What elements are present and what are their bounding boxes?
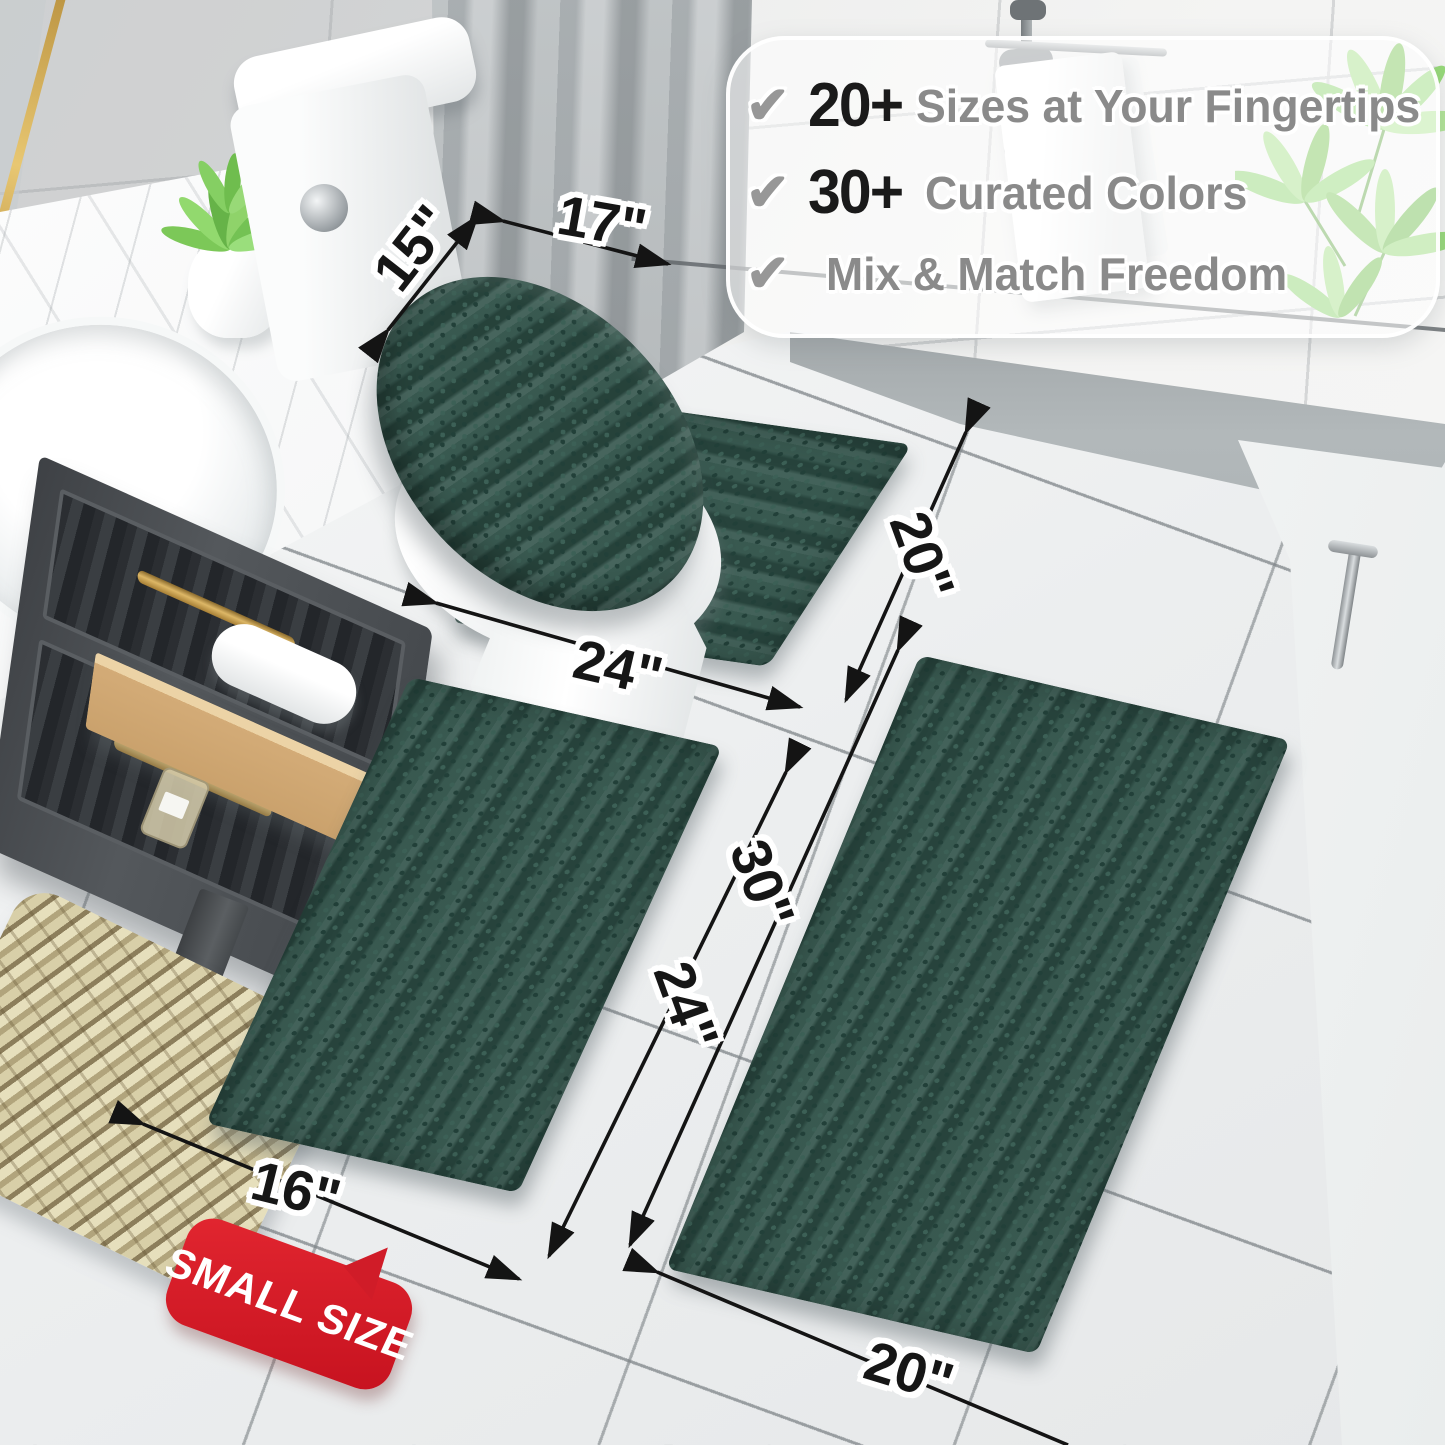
feature-text: Sizes at Your Fingertips (916, 79, 1420, 133)
check-icon: ✔ (746, 163, 790, 223)
feature-row: ✔ 20+ Sizes at Your Fingertips (746, 70, 1436, 141)
feature-number: 30+ (808, 157, 902, 228)
feature-number: 20+ (808, 70, 894, 141)
feature-row: ✔ Mix & Match Freedom (746, 244, 1436, 304)
dimension-label-lid-width: 17" (553, 187, 650, 258)
bottle-label (158, 791, 190, 819)
shower-head-icon (1010, 0, 1046, 20)
check-icon: ✔ (746, 244, 790, 304)
check-icon: ✔ (746, 76, 790, 136)
feature-text: Mix & Match Freedom (826, 247, 1287, 301)
feature-text: Curated Colors (925, 166, 1247, 220)
flush-button (300, 184, 348, 232)
feature-callout: ✔ 20+ Sizes at Your Fingertips ✔ 30+ Cur… (726, 36, 1440, 338)
bathroom-product-scene: 17" 15" 24" 20" 30" 24" 16" 20" ✔ 20+ Si… (0, 0, 1445, 1445)
feature-row: ✔ 30+ Curated Colors (746, 157, 1436, 228)
